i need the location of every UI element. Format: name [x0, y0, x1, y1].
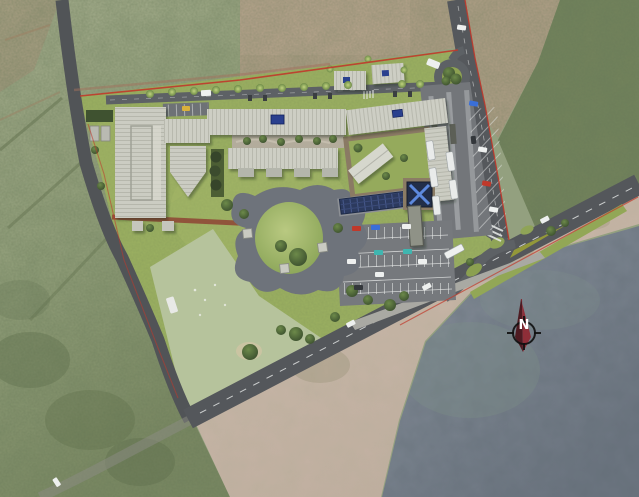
shed-a	[132, 221, 143, 231]
mound-tree	[275, 240, 287, 252]
field-speck	[199, 314, 201, 316]
verge-tree	[399, 291, 409, 301]
lawn-tree	[146, 224, 154, 232]
east-courtyard-tree	[354, 144, 363, 153]
car-dark	[471, 136, 477, 144]
skylight-small-b	[382, 70, 389, 76]
courtyard-tree	[243, 137, 251, 145]
south-block-stub	[294, 168, 310, 177]
courtyard-tree	[277, 138, 285, 146]
verge-tree	[289, 327, 303, 341]
verge-tree	[384, 299, 396, 311]
courtyard-tree	[259, 135, 267, 143]
south-block-stub	[238, 168, 254, 177]
palm-tree	[401, 67, 408, 74]
lawn-tree	[221, 199, 233, 211]
field-speck	[204, 299, 206, 301]
palm-tree	[398, 80, 406, 88]
car-white	[347, 259, 356, 264]
south-block-stub	[322, 168, 338, 177]
palm-tree	[146, 90, 154, 98]
verge-tree	[276, 325, 286, 335]
utility-pad-b	[101, 126, 110, 141]
palm-tree	[168, 88, 176, 96]
west-hall-roof-band	[153, 126, 161, 200]
lawn-tree	[363, 295, 373, 305]
courtyard-tree	[313, 137, 321, 145]
van-white	[201, 90, 211, 97]
verge-tree	[305, 334, 315, 344]
palm-tree	[190, 87, 198, 95]
car-teal	[374, 250, 383, 255]
building-south-classroom-block	[228, 148, 338, 169]
car-white	[402, 224, 411, 229]
field-speck	[224, 304, 226, 306]
roundabout-tree	[442, 77, 451, 86]
plaza-pavilion	[243, 228, 253, 238]
utility-hedge	[86, 110, 113, 122]
junction-tree	[466, 258, 474, 266]
palm-tree	[344, 81, 352, 89]
courtyard-tree	[295, 135, 303, 143]
palm-tree	[212, 86, 220, 94]
palm-tree	[416, 80, 424, 88]
palm-tree	[300, 83, 308, 91]
plaza-pavilion	[317, 242, 327, 252]
south-block-stub	[266, 168, 282, 177]
car-blue	[371, 225, 380, 230]
seaward-verge-tree	[546, 226, 556, 236]
east-courtyard-tree	[400, 154, 408, 162]
car-white	[418, 259, 427, 264]
seaward-verge-tree	[561, 219, 569, 227]
bamboo-cluster	[211, 152, 222, 163]
lawn-tree	[333, 223, 343, 233]
field-speck	[214, 284, 216, 286]
grass-mound	[255, 202, 323, 274]
east-courtyard-tree	[382, 172, 390, 180]
car-dark	[354, 285, 363, 290]
car-white	[375, 272, 384, 277]
car-yellow	[182, 106, 190, 111]
verge-tree	[330, 312, 340, 322]
car-red	[352, 226, 361, 231]
bamboo-cluster	[211, 180, 222, 191]
plaza-pavilion	[280, 263, 290, 273]
palm-tree	[322, 82, 330, 90]
site-plan-rendering: N	[0, 0, 639, 497]
skylight-northeast-block	[392, 109, 403, 117]
building-west-hall-wing	[164, 119, 210, 143]
compass-north-label: N	[519, 318, 530, 333]
courtyard-tree	[329, 135, 337, 143]
lawn-tree	[239, 209, 249, 219]
car-teal	[403, 249, 412, 254]
field-speck	[194, 289, 197, 292]
scrub-thicket	[45, 390, 135, 450]
skylight-north-block	[271, 115, 284, 124]
palm-tree	[234, 85, 242, 93]
shed-b	[162, 221, 174, 231]
field-tree	[242, 344, 258, 360]
bamboo-cluster	[210, 166, 221, 177]
palm-tree	[256, 84, 264, 92]
boundary-tree	[97, 182, 105, 190]
roundabout-tree	[451, 74, 462, 85]
mound-tree	[289, 248, 307, 266]
palm-tree	[278, 84, 286, 92]
site-plan-canvas: N	[0, 0, 639, 497]
